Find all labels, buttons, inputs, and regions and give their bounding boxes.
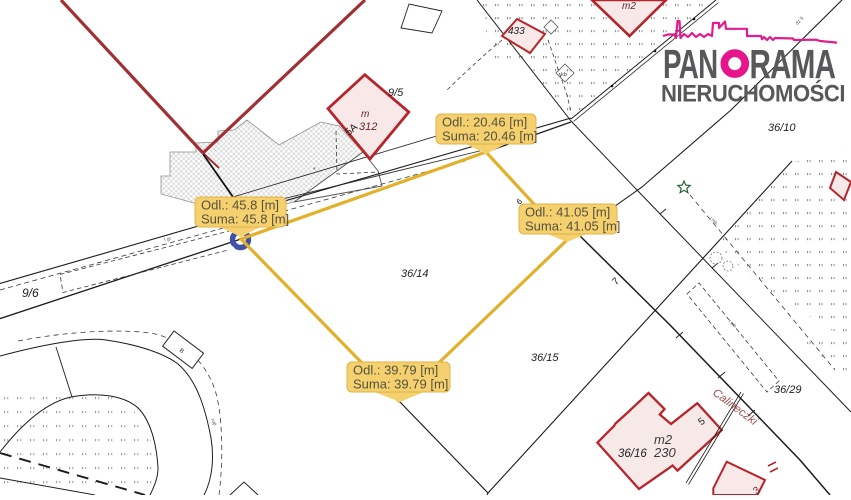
svg-text:Odl.: 39.79 [m]: Odl.: 39.79 [m] — [353, 363, 438, 378]
svg-text:m2: m2 — [622, 1, 636, 12]
svg-text:Suma: 39.79 [m]: Suma: 39.79 [m] — [353, 377, 448, 392]
svg-text:312: 312 — [359, 121, 377, 133]
svg-text:Odl.: 45.8 [m]: Odl.: 45.8 [m] — [201, 198, 279, 213]
svg-text:433: 433 — [508, 26, 525, 37]
svg-text:36/15: 36/15 — [531, 352, 559, 364]
svg-text:kb: kb — [561, 72, 567, 78]
svg-text:NIERUCHOMOŚCI: NIERUCHOMOŚCI — [661, 79, 845, 107]
svg-text:m: m — [361, 109, 369, 120]
svg-text:9/6: 9/6 — [22, 286, 39, 300]
svg-text:Suma: 20.46 [m]: Suma: 20.46 [m] — [442, 129, 537, 144]
svg-text:Odl.: 20.46 [m]: Odl.: 20.46 [m] — [442, 115, 527, 130]
svg-text:Odl.: 41.05 [m]: Odl.: 41.05 [m] — [525, 205, 610, 220]
svg-text:36/14: 36/14 — [401, 268, 429, 280]
svg-text:9/5: 9/5 — [388, 87, 404, 99]
svg-text:36/16: 36/16 — [618, 448, 647, 460]
svg-text:Suma: 45.8 [m]: Suma: 45.8 [m] — [201, 212, 289, 227]
svg-text:Suma: 41.05 [m]: Suma: 41.05 [m] — [525, 219, 620, 234]
svg-text:36/29: 36/29 — [774, 384, 802, 396]
svg-text:230: 230 — [653, 445, 676, 460]
svg-text:36/10: 36/10 — [768, 122, 796, 134]
svg-text:*: * — [313, 167, 316, 174]
